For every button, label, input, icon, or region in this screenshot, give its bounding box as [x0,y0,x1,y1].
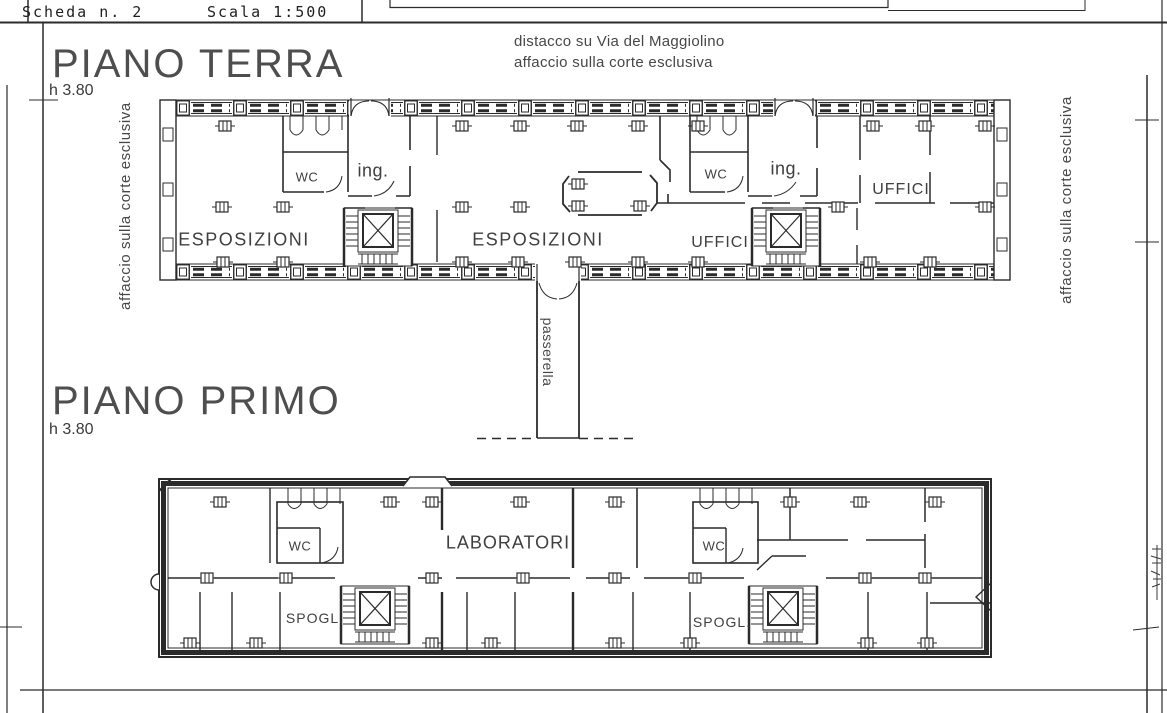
room-label-ing-right: ing. [770,159,801,180]
room-label-uffici-right: UFFICI [872,181,930,199]
room-label-spogl-right: SPOGL. [693,614,751,630]
room-label-ing-left: ing. [357,161,388,182]
first-floor-title: PIANO PRIMO [52,379,341,424]
room-label-spogl-left: SPOGL. [286,610,344,626]
room-label-wc-right-ff: WC [703,539,726,554]
floorplan-drawing [0,0,1167,713]
room-label-wc-left-ff: WC [289,539,312,554]
right-court-note: affaccio sulla corte esclusiva [1058,85,1075,315]
gf-stair-right [752,208,820,266]
scale-label: Scala 1:500 [207,3,328,21]
street-distance-note: distacco su Via del Maggiolino [514,33,725,50]
ground-floor-title: PIANO TERRA [52,42,344,87]
room-label-wc-left-gf: WC [296,170,319,185]
ff-stair-right [749,586,817,644]
court-facing-note: affaccio sulla corte esclusiva [514,54,713,71]
room-label-wc-right-gf: WC [705,167,728,182]
room-label-esposizioni-left: ESPOSIZIONI [178,230,310,251]
ground-floor-height-label: h 3.80 [49,82,93,100]
passerella-label: passerella [540,312,556,392]
first-floor-plan [151,477,991,657]
room-label-uffici-center: UFFICI [691,234,749,252]
left-court-note: affaccio sulla corte esclusiva [117,105,134,310]
margin-scribble [1151,545,1161,600]
first-floor-height-label: h 3.80 [49,421,93,439]
ff-stair-left [341,586,409,644]
scanned-plan-sheet: { "header": { "sheet_number_label": "Sch… [0,0,1167,713]
room-label-esposizioni-center: ESPOSIZIONI [472,230,604,251]
entrance-left [349,98,391,117]
entrance-right [773,98,815,117]
gf-stair-left [344,208,412,266]
sheet-number-label: Scheda n. 2 [22,3,143,21]
room-label-laboratori: LABORATORI [446,533,570,554]
